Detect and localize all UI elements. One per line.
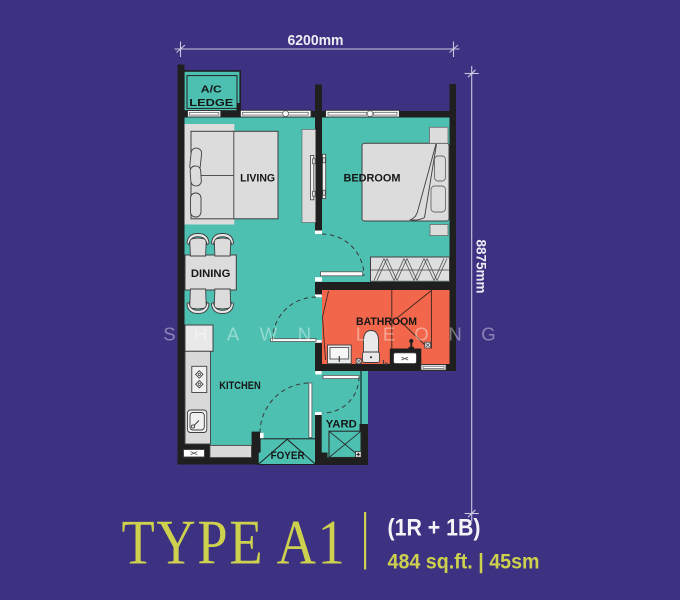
svg-text:BEDROOM: BEDROOM [344, 172, 401, 184]
svg-text:TYPE A1: TYPE A1 [122, 507, 347, 578]
svg-text:H: H [194, 323, 207, 344]
svg-text:KITCHEN: KITCHEN [219, 380, 261, 392]
svg-text:O: O [414, 323, 428, 344]
svg-text:A: A [227, 323, 240, 344]
svg-text:LEDGE: LEDGE [189, 98, 233, 109]
svg-text:6200mm: 6200mm [288, 32, 344, 49]
svg-text:G: G [481, 323, 495, 344]
svg-text:484 sq.ft. | 45sm: 484 sq.ft. | 45sm [388, 551, 540, 574]
svg-text:S: S [163, 323, 175, 344]
svg-text:N: N [448, 323, 461, 344]
svg-text:L: L [356, 323, 366, 344]
svg-text:(1R + 1B): (1R + 1B) [388, 515, 481, 542]
svg-text:E: E [383, 323, 395, 344]
svg-text:A/C: A/C [201, 84, 222, 95]
svg-text:LIVING: LIVING [240, 173, 275, 185]
svg-text:8875mm: 8875mm [474, 239, 489, 293]
svg-text:YARD: YARD [326, 418, 357, 430]
svg-text:DINING: DINING [191, 268, 231, 280]
svg-text:FOYER: FOYER [271, 450, 305, 462]
svg-text:W: W [260, 323, 278, 344]
svg-text:N: N [298, 323, 311, 344]
